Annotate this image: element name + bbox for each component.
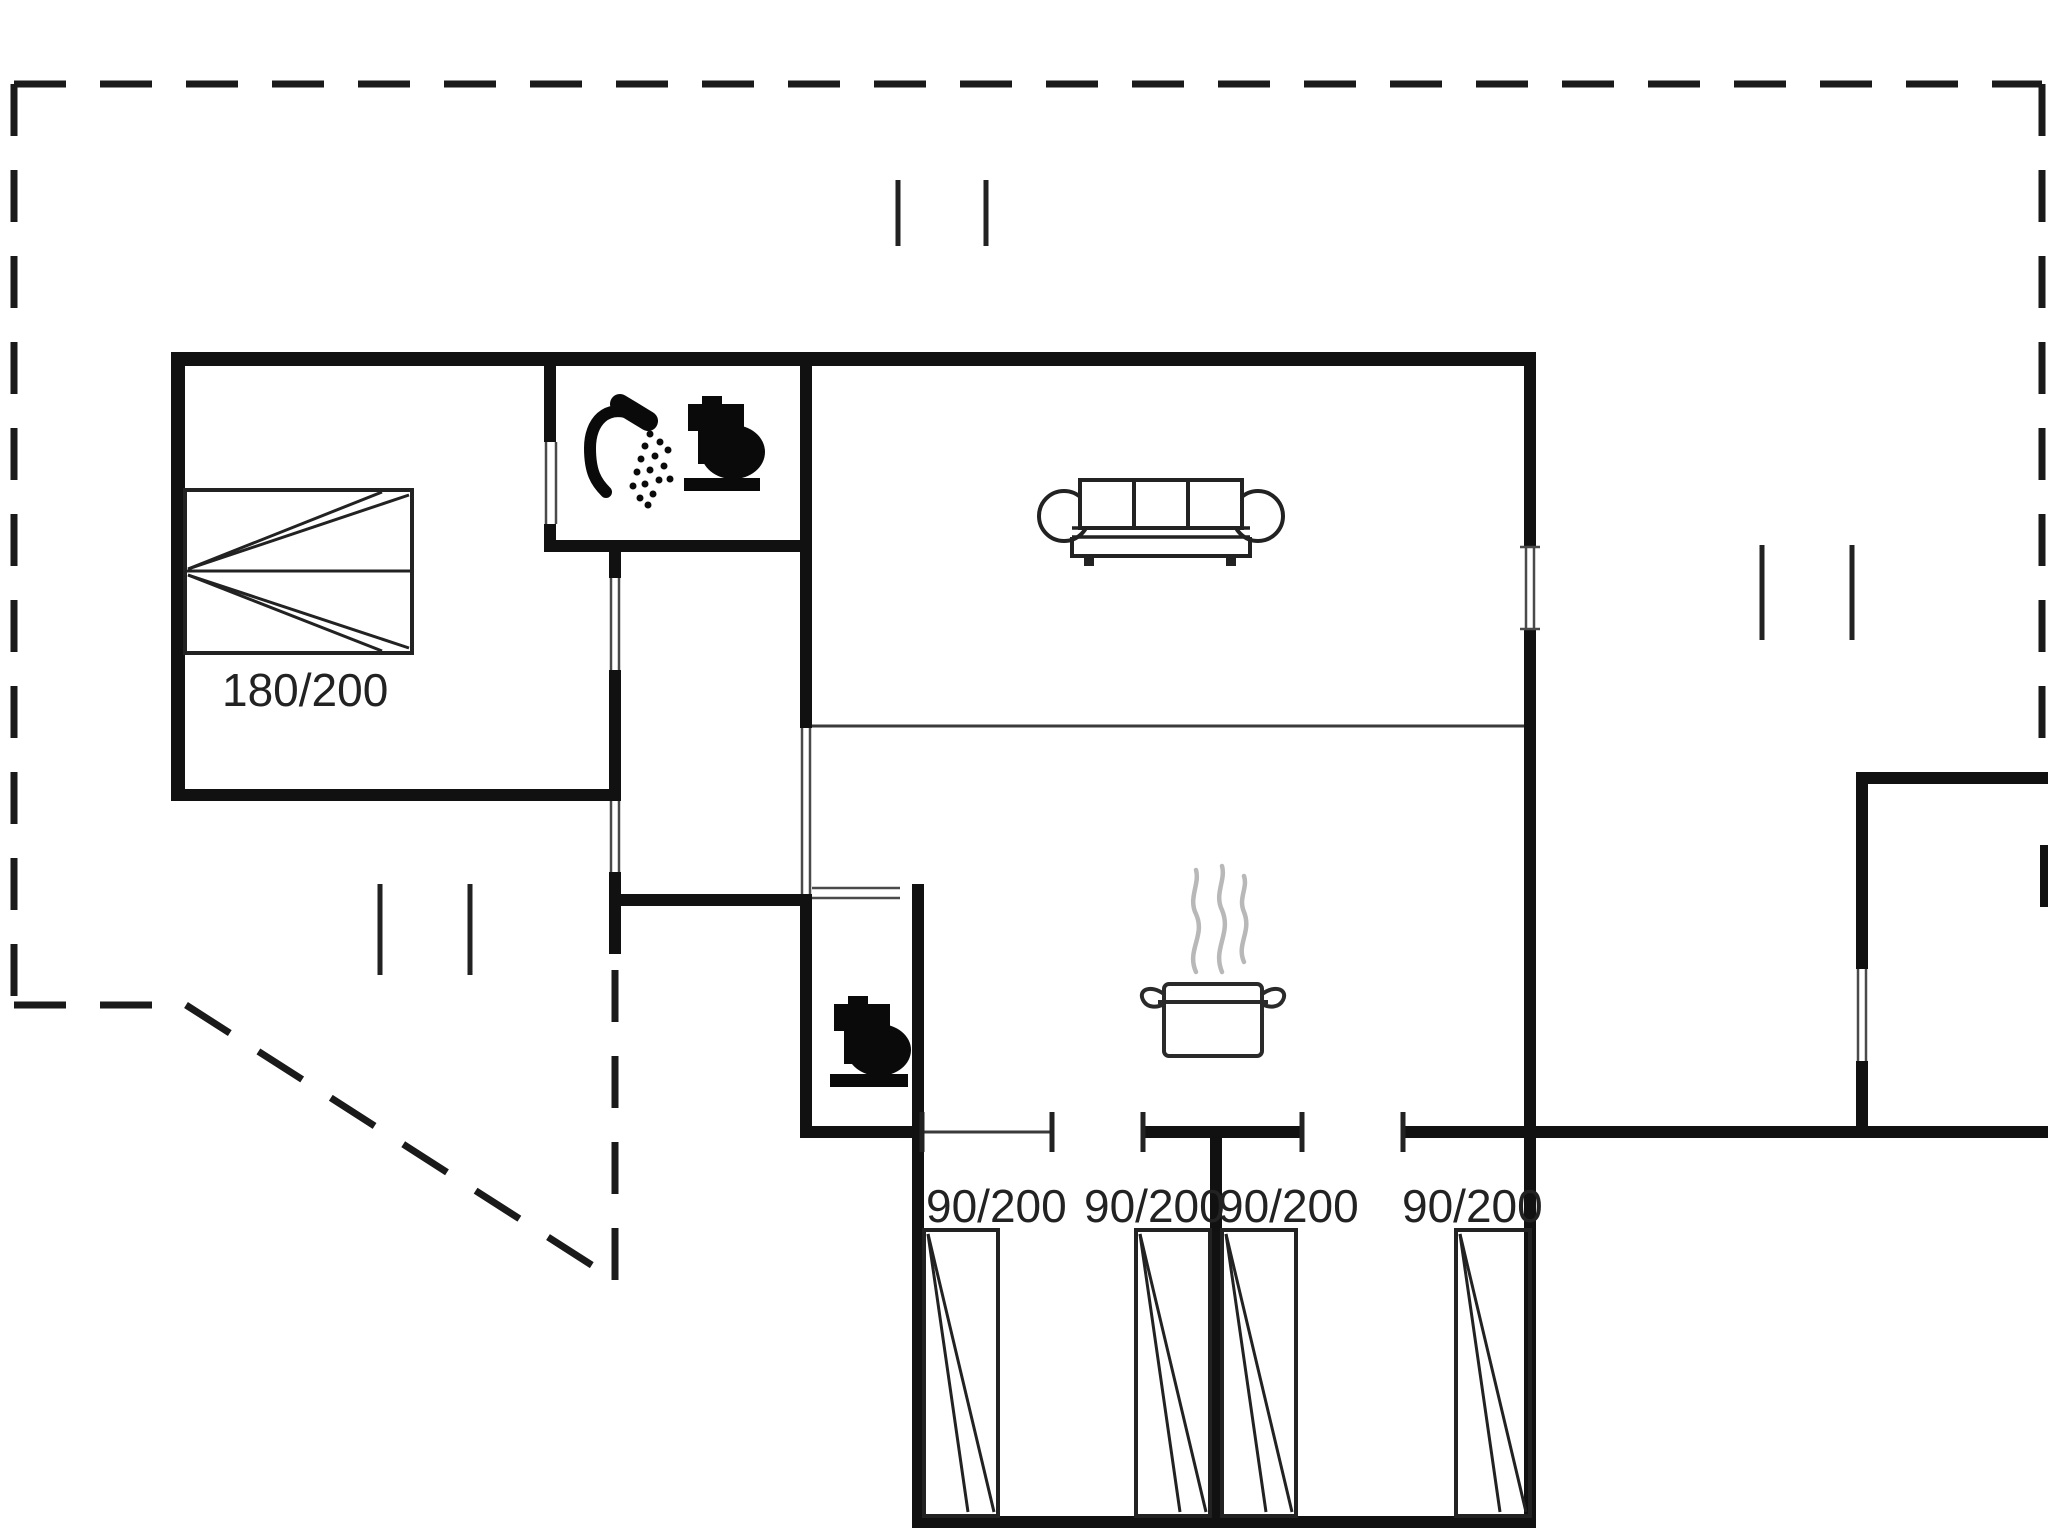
wall-annex-top [1856, 772, 2048, 784]
shower-spray-dot [634, 469, 641, 476]
wall-right-upper [1524, 352, 1536, 547]
boundary-diagonal [186, 1005, 615, 1280]
label-single-bed-2: 90/200 [1084, 1180, 1225, 1232]
double-bed-fold [188, 495, 409, 569]
cooking-pot-handle [1142, 989, 1164, 1007]
toilet-wc-base [830, 1074, 908, 1087]
shower-spray-dot [656, 477, 663, 484]
shower-spray-dot [645, 502, 652, 509]
double-bed-fold [188, 575, 409, 648]
shower-spray-dot [665, 447, 672, 454]
cooking-pot-steam [1193, 870, 1199, 972]
shower-spray-dot [630, 483, 637, 490]
wall-left [171, 352, 185, 801]
shower-spray-dot [637, 495, 644, 502]
sofa-base [1072, 537, 1250, 556]
sofa-foot [1226, 556, 1236, 566]
wall-wc-left [800, 894, 812, 1138]
floorplan: 180/20090/20090/20090/20090/200 [0, 0, 2048, 1536]
cooking-pot-steam [1219, 866, 1225, 972]
wall-row-mid [1143, 1126, 1302, 1138]
sofa-cushions [1080, 480, 1242, 528]
label-single-bed-1: 90/200 [926, 1180, 1067, 1232]
wall-stub-below-bedroom [609, 872, 621, 954]
cooking-pot-handle [1262, 989, 1284, 1007]
wall-bath-bottom [544, 540, 812, 552]
wall-bath-right [800, 366, 812, 728]
toilet-bathroom-cap [702, 396, 722, 405]
shower-spray-dot [642, 481, 649, 488]
toilet-bathroom-base [684, 478, 760, 491]
label-single-bed-3: 90/200 [1218, 1180, 1359, 1232]
wall-annex-left-lower [1856, 1061, 1868, 1138]
wall-edge-piece [2040, 845, 2048, 907]
floorplan-svg: 180/20090/20090/20090/20090/200 [0, 0, 2048, 1536]
shower-spray-dot [638, 456, 645, 463]
double-bed-fold [188, 492, 382, 569]
toilet-wc-cap [848, 996, 868, 1005]
wall-bath-left-upper [544, 366, 556, 442]
wall-long-right [1536, 1126, 2048, 1138]
shower-spray-dot [647, 431, 654, 438]
cooking-pot-steam [1242, 876, 1247, 962]
label-single-bed-4: 90/200 [1402, 1180, 1543, 1232]
toilet-wc-bowl [847, 1024, 911, 1076]
cooking-pot-body [1164, 984, 1262, 1056]
wall-wc-bottom [800, 1126, 924, 1138]
wall-top [171, 352, 1536, 366]
wall-bedroom-bottom [171, 789, 621, 801]
double-bed-fold [188, 575, 382, 651]
shower-arm [590, 411, 632, 492]
wall-row-right [1403, 1126, 1536, 1138]
shower-spray-dot [647, 467, 654, 474]
label-double-bed: 180/200 [222, 664, 388, 716]
shower-spray-dot [661, 463, 668, 470]
shower-spray-dot [650, 491, 657, 498]
shower-spray-dot [667, 476, 674, 483]
wall-annex-left-upper [1856, 772, 1868, 969]
shower-spray-dot [652, 453, 659, 460]
shower-spray-dot [657, 439, 664, 446]
sofa-foot [1084, 556, 1094, 566]
toilet-bathroom-bowl [701, 425, 765, 479]
wall-hall-bottom [609, 894, 812, 906]
wall-bedroom-hall [609, 670, 621, 801]
shower-spray-dot [642, 443, 649, 450]
